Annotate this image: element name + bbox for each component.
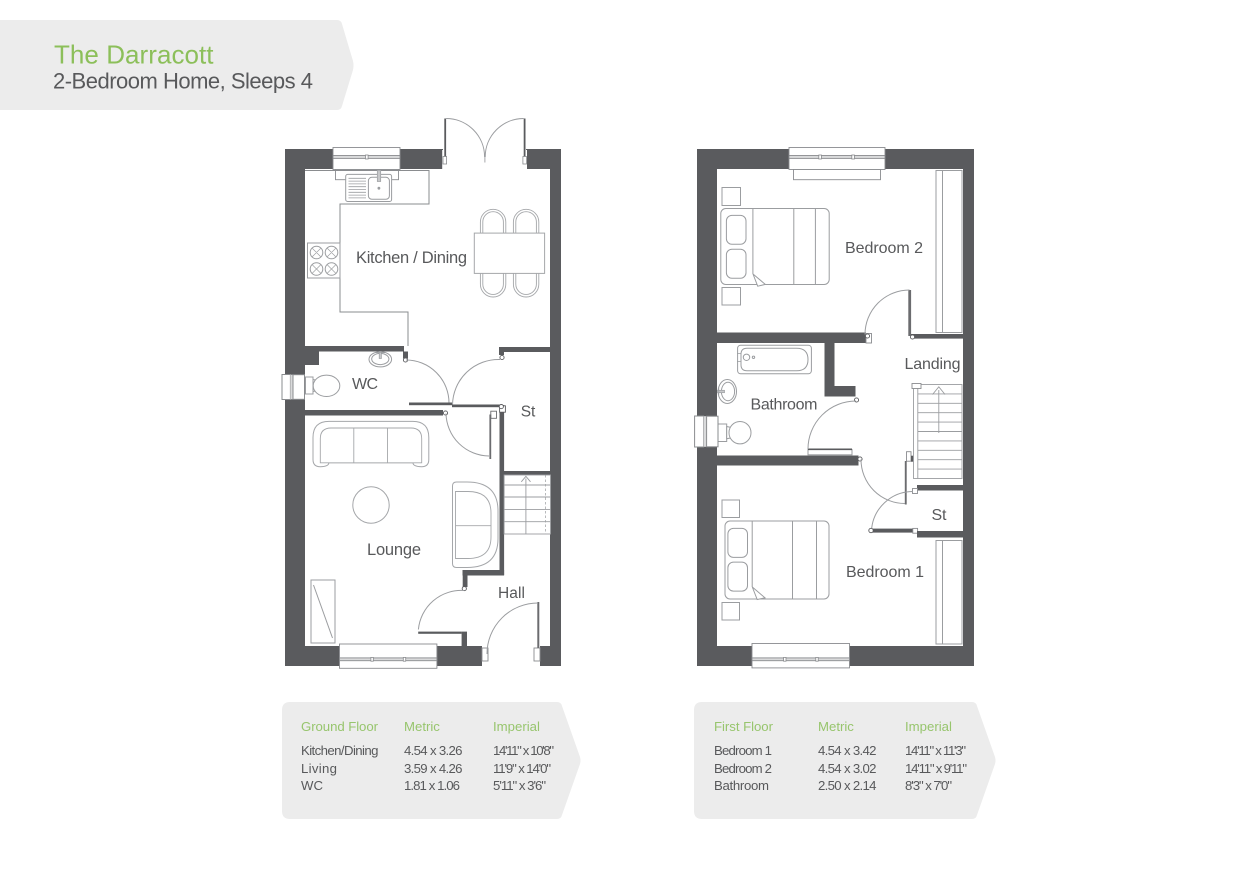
- svg-text:4.54 x 3.42: 4.54 x 3.42: [818, 743, 877, 758]
- svg-text:Bedroom 2: Bedroom 2: [845, 240, 923, 257]
- svg-text:14'11" x 9'11": 14'11" x 9'11": [905, 761, 967, 776]
- svg-text:3.59 x 4.26: 3.59 x 4.26: [404, 761, 463, 776]
- svg-text:14'11" x 11'3": 14'11" x 11'3": [905, 743, 966, 758]
- svg-text:St: St: [521, 404, 536, 421]
- svg-text:Imperial: Imperial: [493, 719, 540, 734]
- svg-text:2-Bedroom Home, Sleeps 4: 2-Bedroom Home, Sleeps 4: [53, 69, 313, 94]
- svg-text:Hall: Hall: [498, 585, 525, 602]
- svg-text:1.81 x 1.06: 1.81 x 1.06: [404, 778, 460, 793]
- svg-text:11'9" x 14'0": 11'9" x 14'0": [493, 761, 551, 776]
- svg-text:First Floor: First Floor: [714, 719, 774, 734]
- svg-text:Living: Living: [301, 761, 337, 776]
- svg-text:Kitchen / Dining: Kitchen / Dining: [356, 249, 467, 267]
- svg-text:WC: WC: [352, 376, 378, 393]
- svg-text:5'11" x 3'6": 5'11" x 3'6": [493, 778, 546, 793]
- svg-text:Bathroom: Bathroom: [751, 397, 818, 414]
- svg-text:Imperial: Imperial: [905, 719, 952, 734]
- svg-text:St: St: [932, 507, 948, 524]
- svg-text:2.50 x 2.14: 2.50 x 2.14: [818, 778, 877, 793]
- svg-text:Kitchen/Dining: Kitchen/Dining: [301, 743, 379, 758]
- svg-text:Bathroom: Bathroom: [714, 778, 769, 793]
- svg-text:4.54 x 3.02: 4.54 x 3.02: [818, 761, 877, 776]
- svg-text:14'11" x 10'8": 14'11" x 10'8": [493, 743, 554, 758]
- svg-text:8'3" x 7'0": 8'3" x 7'0": [905, 778, 952, 793]
- svg-text:Landing: Landing: [905, 356, 961, 373]
- svg-text:Metric: Metric: [404, 719, 440, 734]
- svg-text:Ground Floor: Ground Floor: [301, 719, 379, 734]
- svg-text:WC: WC: [301, 778, 323, 793]
- svg-text:Bedroom 2: Bedroom 2: [714, 761, 772, 776]
- svg-text:Bedroom 1: Bedroom 1: [714, 743, 772, 758]
- svg-text:Bedroom 1: Bedroom 1: [846, 564, 924, 581]
- svg-text:Lounge: Lounge: [367, 541, 421, 559]
- svg-text:Metric: Metric: [818, 719, 854, 734]
- svg-text:The Darracott: The Darracott: [54, 40, 214, 70]
- svg-text:4.54 x 3.26: 4.54 x 3.26: [404, 743, 463, 758]
